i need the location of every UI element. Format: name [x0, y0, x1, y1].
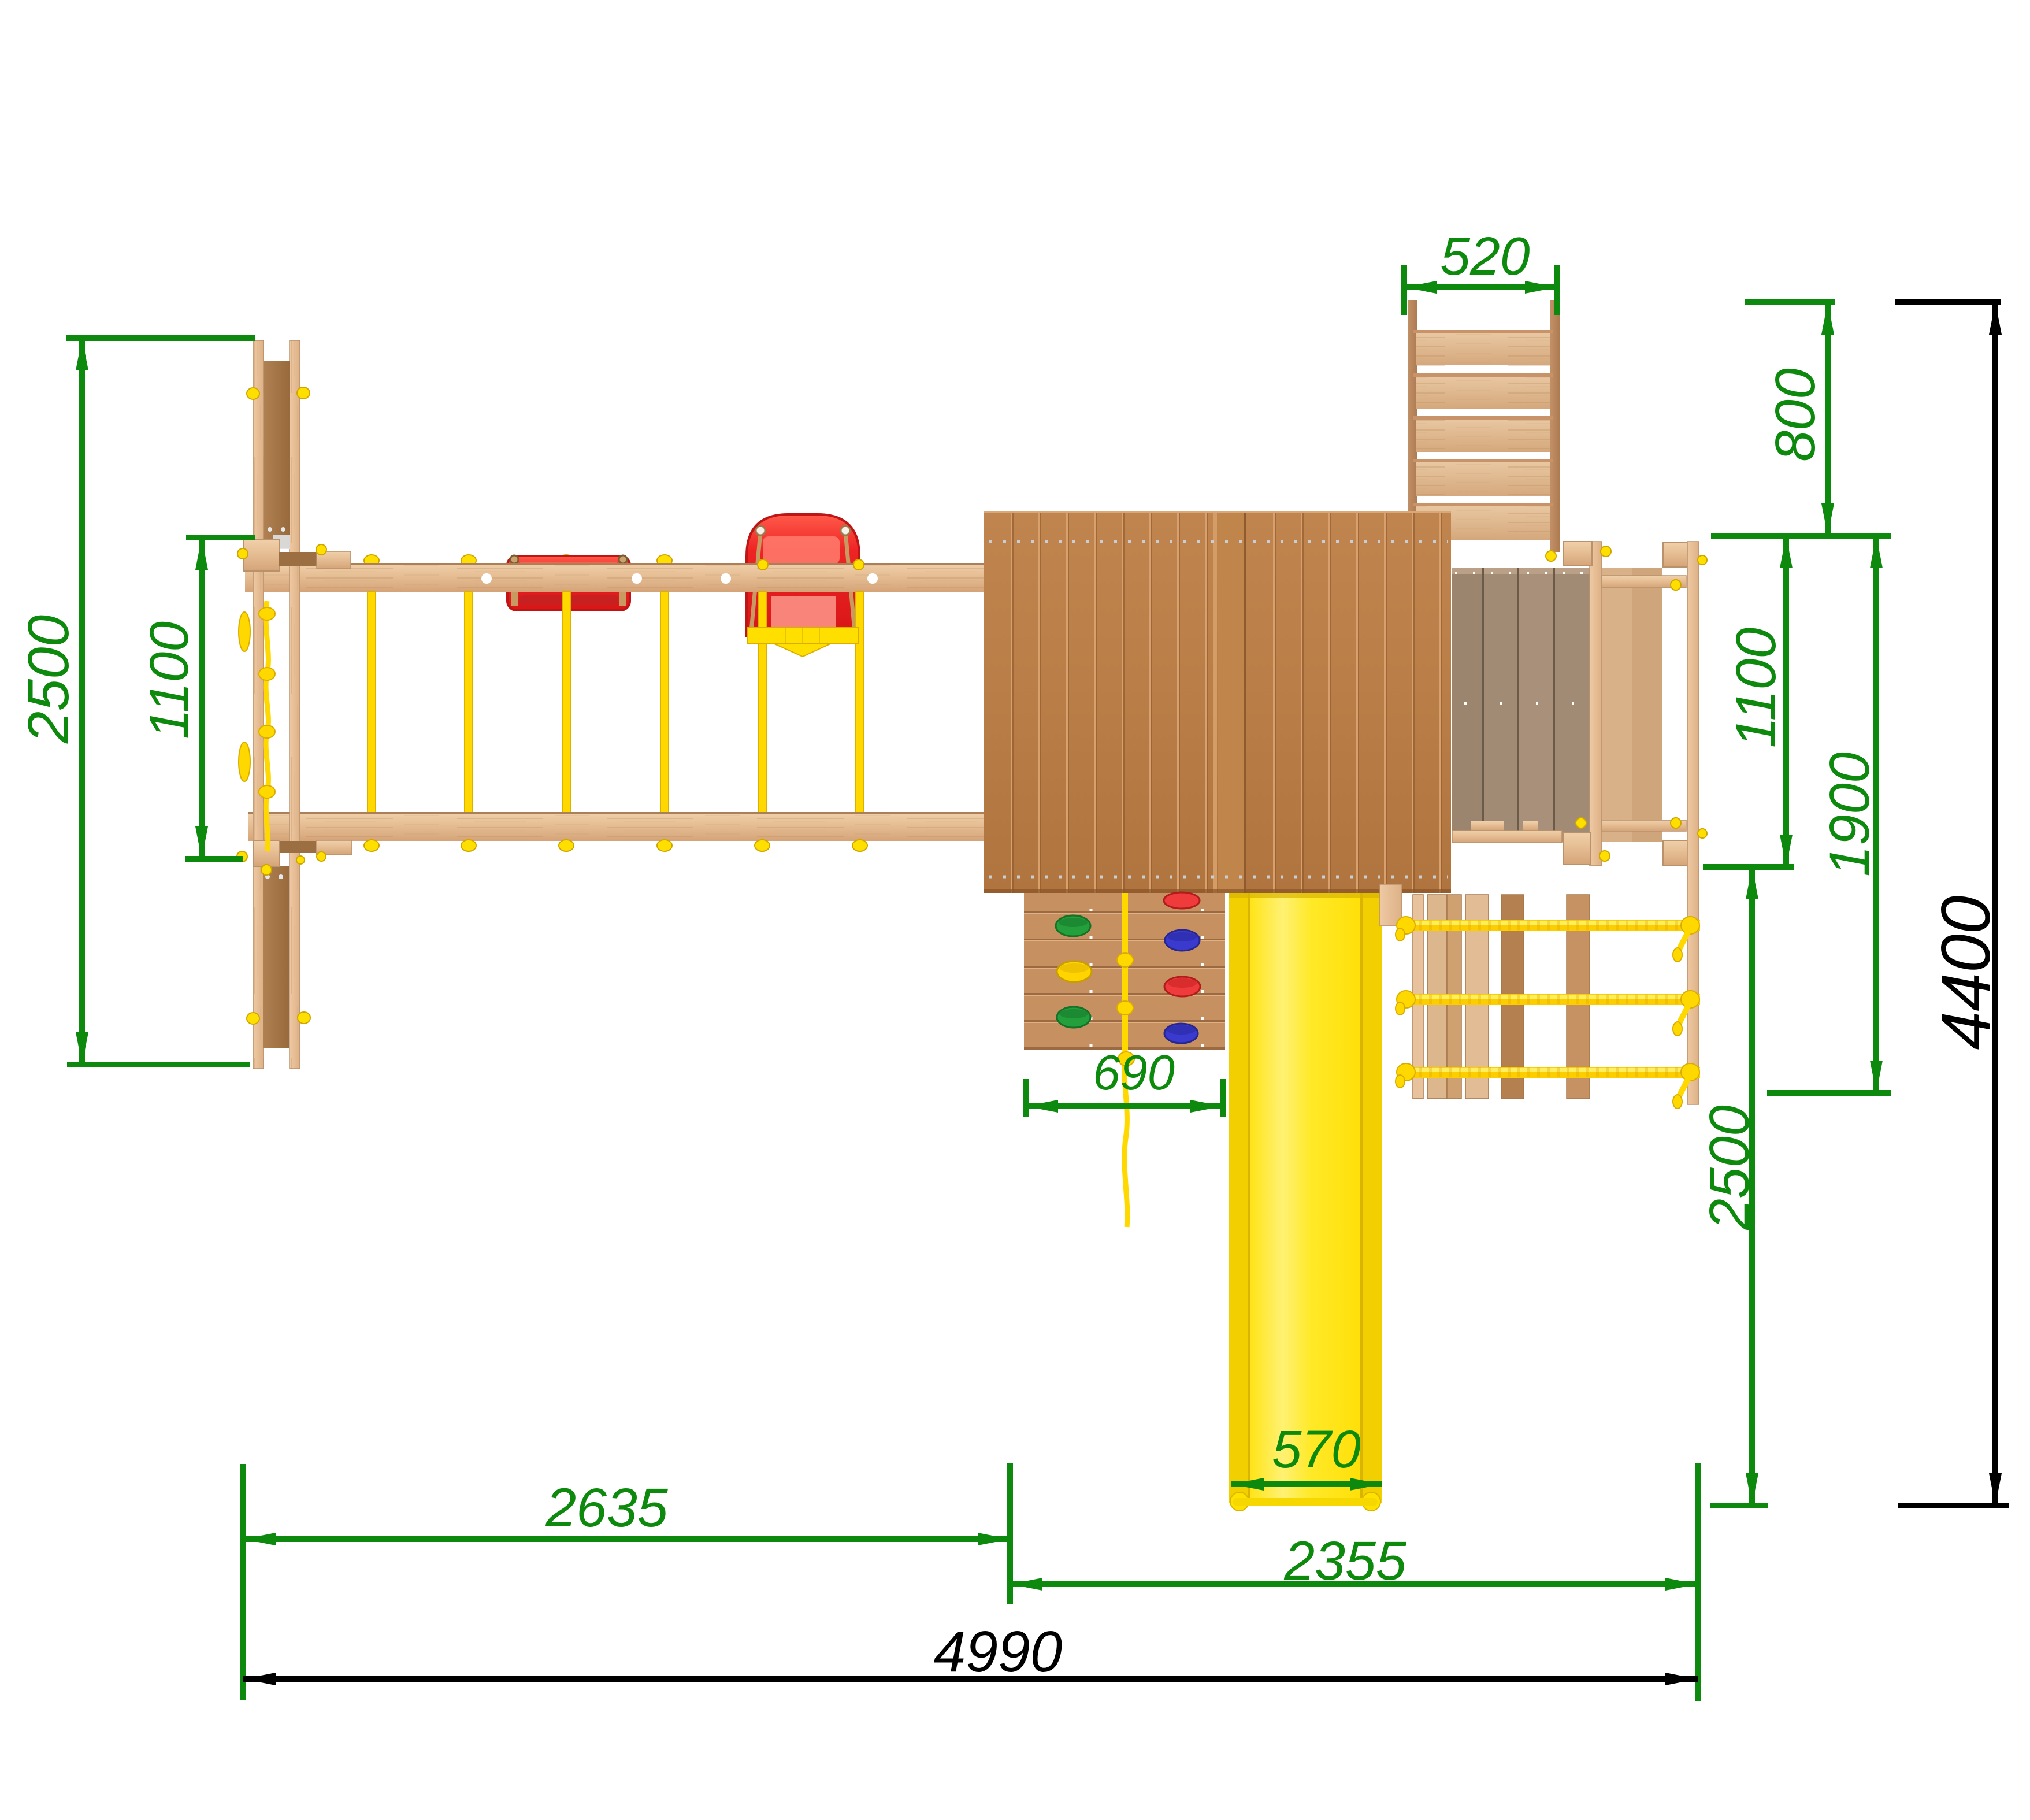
- svg-text:2635: 2635: [545, 1477, 669, 1539]
- svg-text:2500: 2500: [16, 615, 81, 744]
- svg-text:520: 520: [1440, 226, 1530, 286]
- svg-text:690: 690: [1093, 1046, 1175, 1100]
- svg-text:1100: 1100: [139, 621, 200, 739]
- svg-text:570: 570: [1272, 1420, 1361, 1479]
- svg-text:1900: 1900: [1818, 752, 1881, 877]
- svg-text:4990: 4990: [934, 1619, 1062, 1684]
- svg-text:4400: 4400: [1927, 896, 2005, 1050]
- svg-text:800: 800: [1764, 368, 1827, 462]
- svg-text:2355: 2355: [1283, 1530, 1407, 1592]
- svg-text:2500: 2500: [1698, 1105, 1761, 1230]
- svg-text:1100: 1100: [1724, 628, 1787, 748]
